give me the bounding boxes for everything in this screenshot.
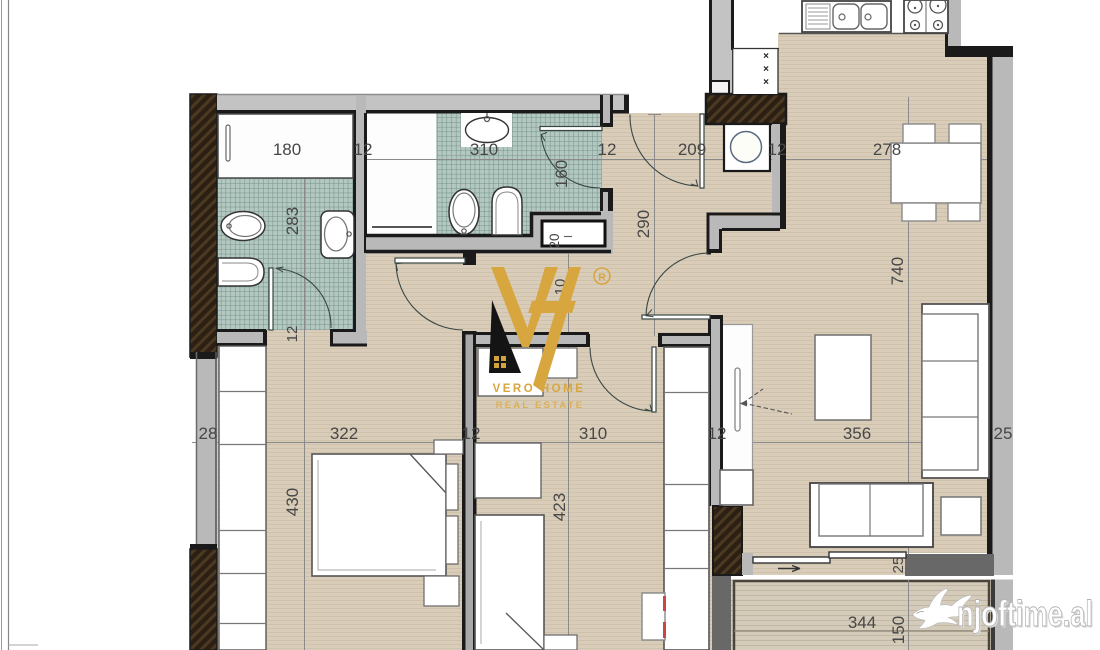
svg-text:310: 310: [579, 424, 607, 443]
svg-text:344: 344: [848, 613, 876, 632]
svg-text:25: 25: [994, 424, 1013, 443]
svg-text:310: 310: [470, 140, 498, 159]
svg-text:njoftime.al: njoftime.al: [957, 593, 1093, 634]
svg-text:REAL ESTATE: REAL ESTATE: [496, 400, 585, 411]
svg-text:278: 278: [873, 140, 901, 159]
svg-text:356: 356: [843, 424, 871, 443]
svg-text:423: 423: [550, 493, 569, 521]
svg-text:12: 12: [768, 140, 787, 159]
svg-text:290: 290: [634, 210, 653, 238]
svg-text:12: 12: [284, 326, 301, 343]
svg-text:283: 283: [283, 207, 302, 235]
svg-text:160: 160: [552, 160, 571, 188]
svg-text:12: 12: [708, 424, 727, 443]
svg-text:25: 25: [890, 557, 907, 574]
svg-text:R: R: [598, 272, 606, 284]
svg-text:740: 740: [888, 257, 907, 285]
svg-text:×: ×: [763, 51, 769, 62]
svg-text:150: 150: [889, 616, 908, 644]
svg-text:12: 12: [462, 424, 481, 443]
svg-text:209: 209: [678, 140, 706, 159]
svg-text:×: ×: [763, 77, 769, 88]
svg-text:28: 28: [199, 424, 218, 443]
svg-text:430: 430: [283, 488, 302, 516]
svg-text:12: 12: [354, 140, 373, 159]
svg-text:322: 322: [330, 424, 358, 443]
svg-text:180: 180: [273, 140, 301, 159]
svg-text:12: 12: [598, 140, 617, 159]
svg-text:20: 20: [547, 233, 562, 248]
svg-text:×: ×: [763, 64, 769, 75]
svg-text:VERO HOME: VERO HOME: [493, 383, 586, 395]
